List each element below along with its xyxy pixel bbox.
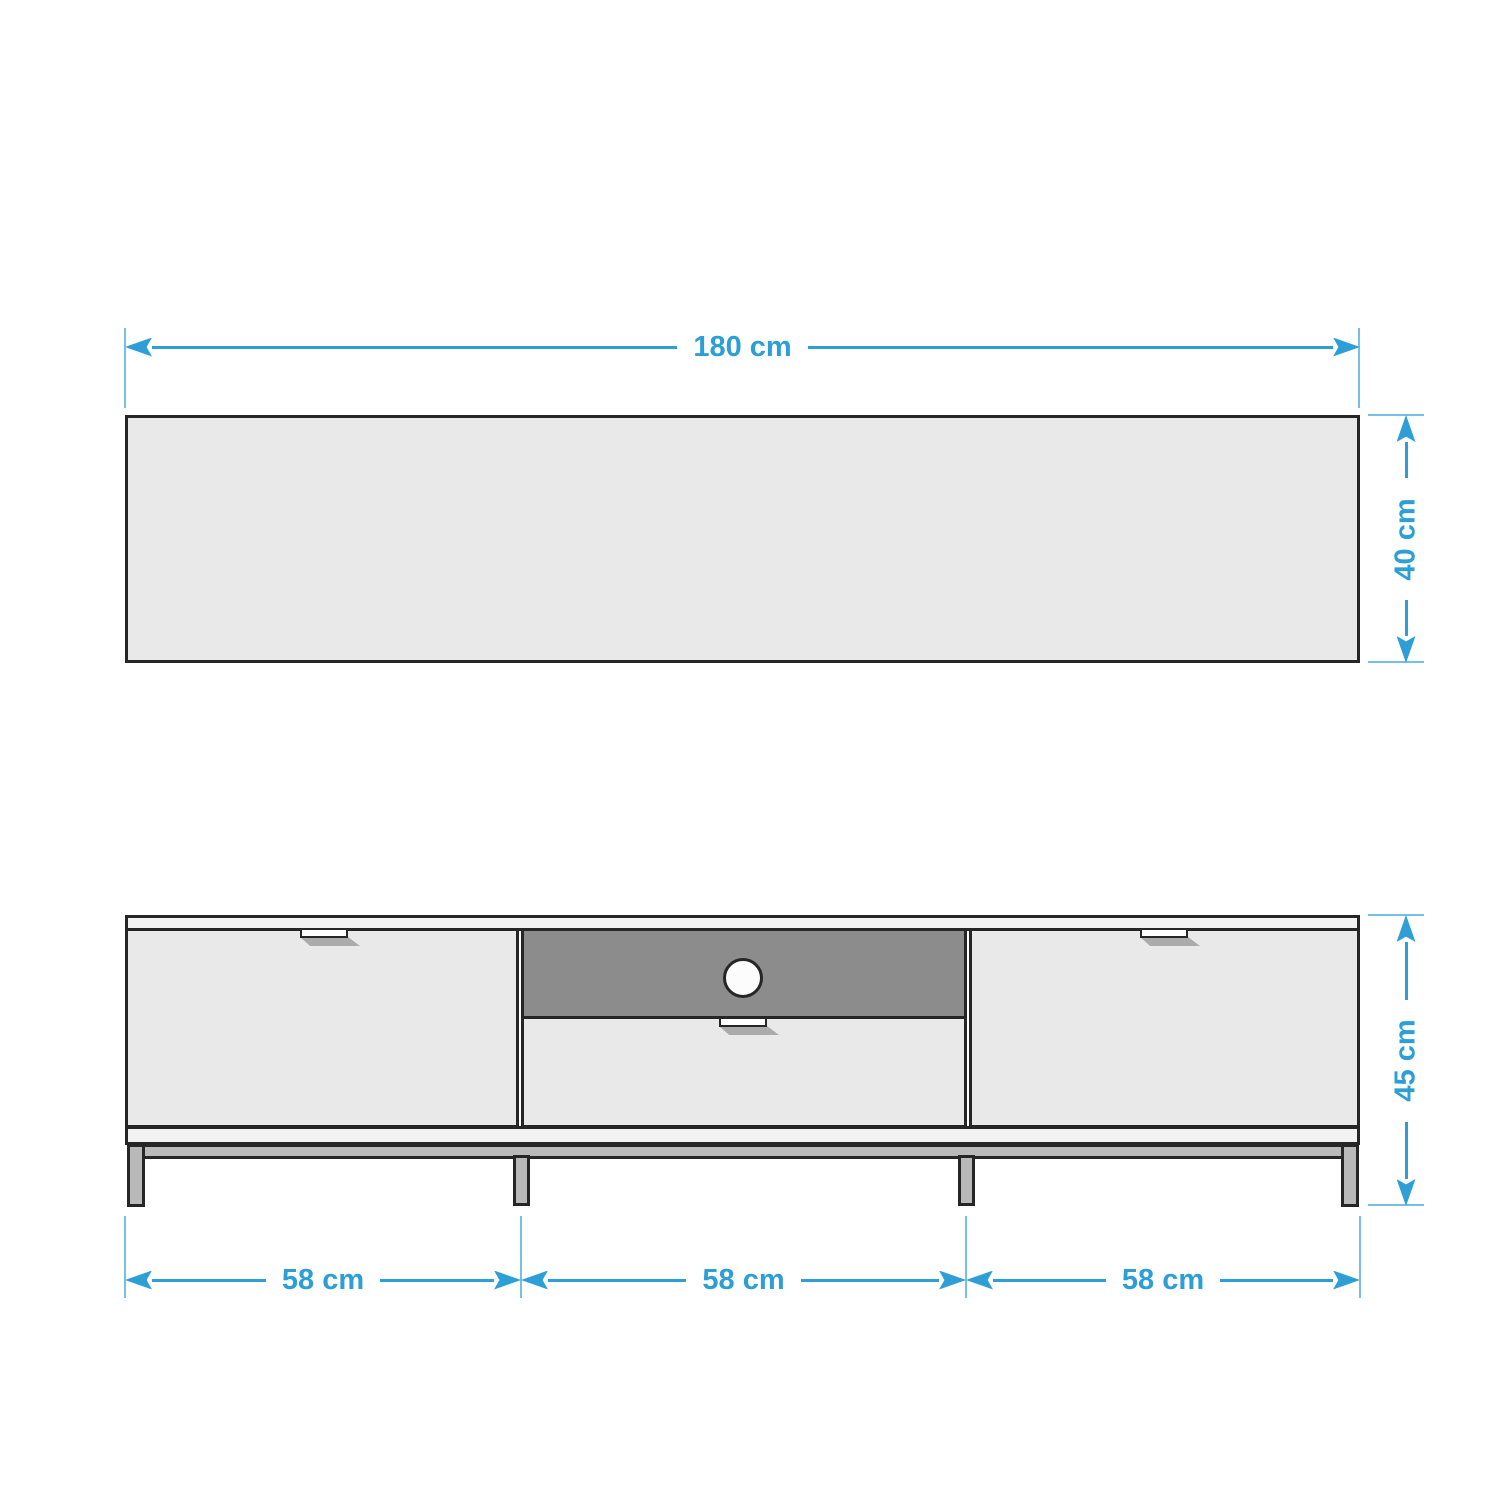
dimension-line [1405, 942, 1408, 1000]
dim-arrow-left-icon [521, 1271, 548, 1290]
vertical-label-box: 45 cm [1391, 1000, 1421, 1122]
dim-arrow-right-icon [1333, 1271, 1360, 1290]
left-door-handle [300, 928, 348, 938]
vertical-label-box: 40 cm [1391, 478, 1421, 600]
dim-arrow-left-icon [125, 338, 152, 357]
dimension-label-section-3: 58 cm [1122, 1266, 1204, 1295]
dim-arrow-down-icon [1397, 1179, 1416, 1206]
right-door [969, 928, 1360, 1128]
dimension-line [1405, 600, 1408, 636]
dimension-section-1: 58 cm [125, 1265, 521, 1295]
left-door [125, 928, 519, 1128]
cable-hole [723, 958, 763, 998]
dimension-line [152, 346, 677, 349]
bottom-panel [125, 1126, 1360, 1145]
dimension-line [801, 1279, 939, 1282]
dimension-depth-40: 40 cm [1391, 415, 1421, 663]
dim-arrow-up-icon [1397, 415, 1416, 442]
leg-middle-right [958, 1155, 975, 1206]
dimension-section-3: 58 cm [966, 1265, 1360, 1295]
dimension-line [152, 1279, 266, 1282]
leg-middle-left [513, 1155, 530, 1206]
dimension-section-2: 58 cm [521, 1265, 966, 1295]
top-view-panel [125, 415, 1360, 663]
dimension-label-height: 45 cm [1392, 1019, 1421, 1101]
dim-arrow-left-icon [125, 1271, 152, 1290]
dim-arrow-up-icon [1397, 915, 1416, 942]
dimension-line [1405, 442, 1408, 478]
furniture-dimension-diagram: 180 cm 40 cm [0, 0, 1500, 1499]
dimension-line [1220, 1279, 1333, 1282]
leg-front-right [1341, 1144, 1359, 1207]
drawer-handle [719, 1017, 767, 1027]
dim-arrow-right-icon [494, 1271, 521, 1290]
dimension-label-depth: 40 cm [1392, 498, 1421, 580]
right-door-handle [1140, 928, 1188, 938]
base-rail [127, 1144, 1358, 1159]
dimension-width-180: 180 cm [125, 332, 1360, 362]
dimension-label-section-2: 58 cm [702, 1266, 784, 1295]
dimension-height-45: 45 cm [1391, 915, 1421, 1206]
leg-front-left [127, 1144, 145, 1207]
dim-arrow-left-icon [966, 1271, 993, 1290]
dimension-label-width: 180 cm [693, 333, 791, 362]
dim-arrow-right-icon [1333, 338, 1360, 357]
dim-arrow-right-icon [939, 1271, 966, 1290]
dimension-line [380, 1279, 494, 1282]
dimension-line [1405, 1122, 1408, 1180]
dimension-label-section-1: 58 cm [282, 1266, 364, 1295]
dimension-line [548, 1279, 686, 1282]
dimension-line [808, 346, 1333, 349]
dimension-line [993, 1279, 1106, 1282]
dim-arrow-down-icon [1397, 636, 1416, 663]
